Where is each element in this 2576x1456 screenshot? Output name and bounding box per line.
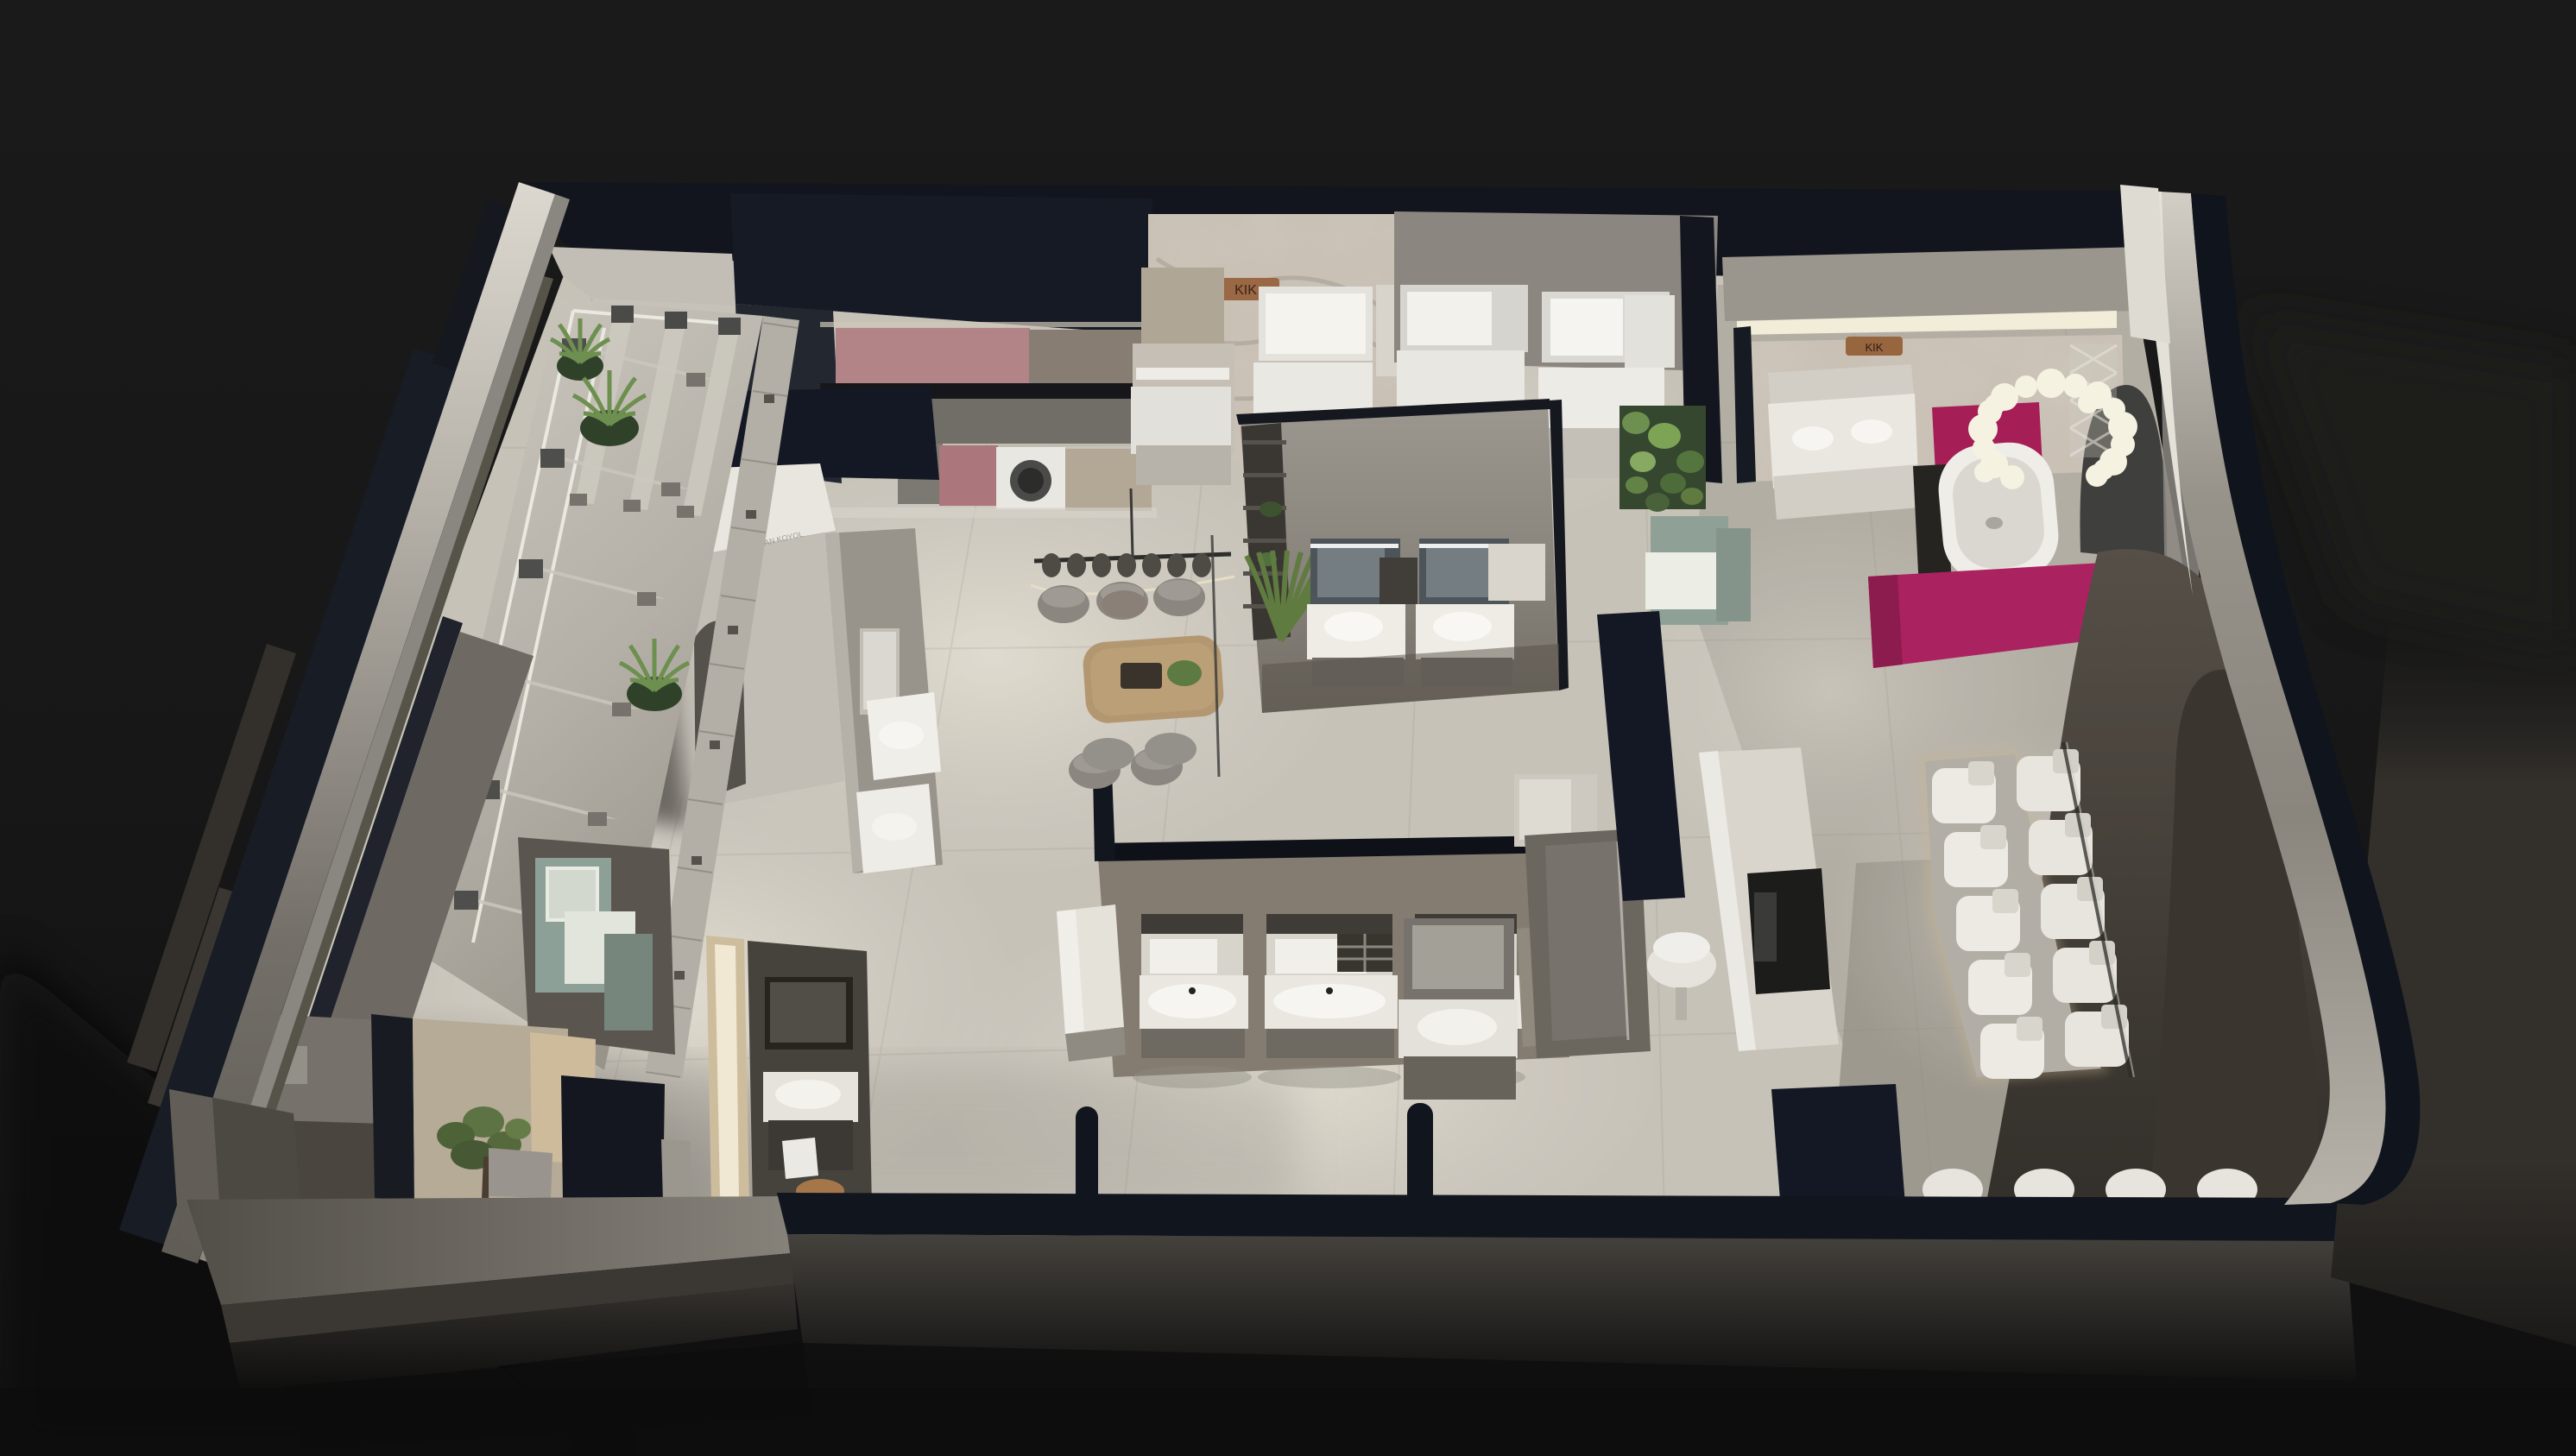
svg-text:KIK: KIK xyxy=(1866,341,1884,354)
svg-text:KIK: KIK xyxy=(1234,283,1257,298)
